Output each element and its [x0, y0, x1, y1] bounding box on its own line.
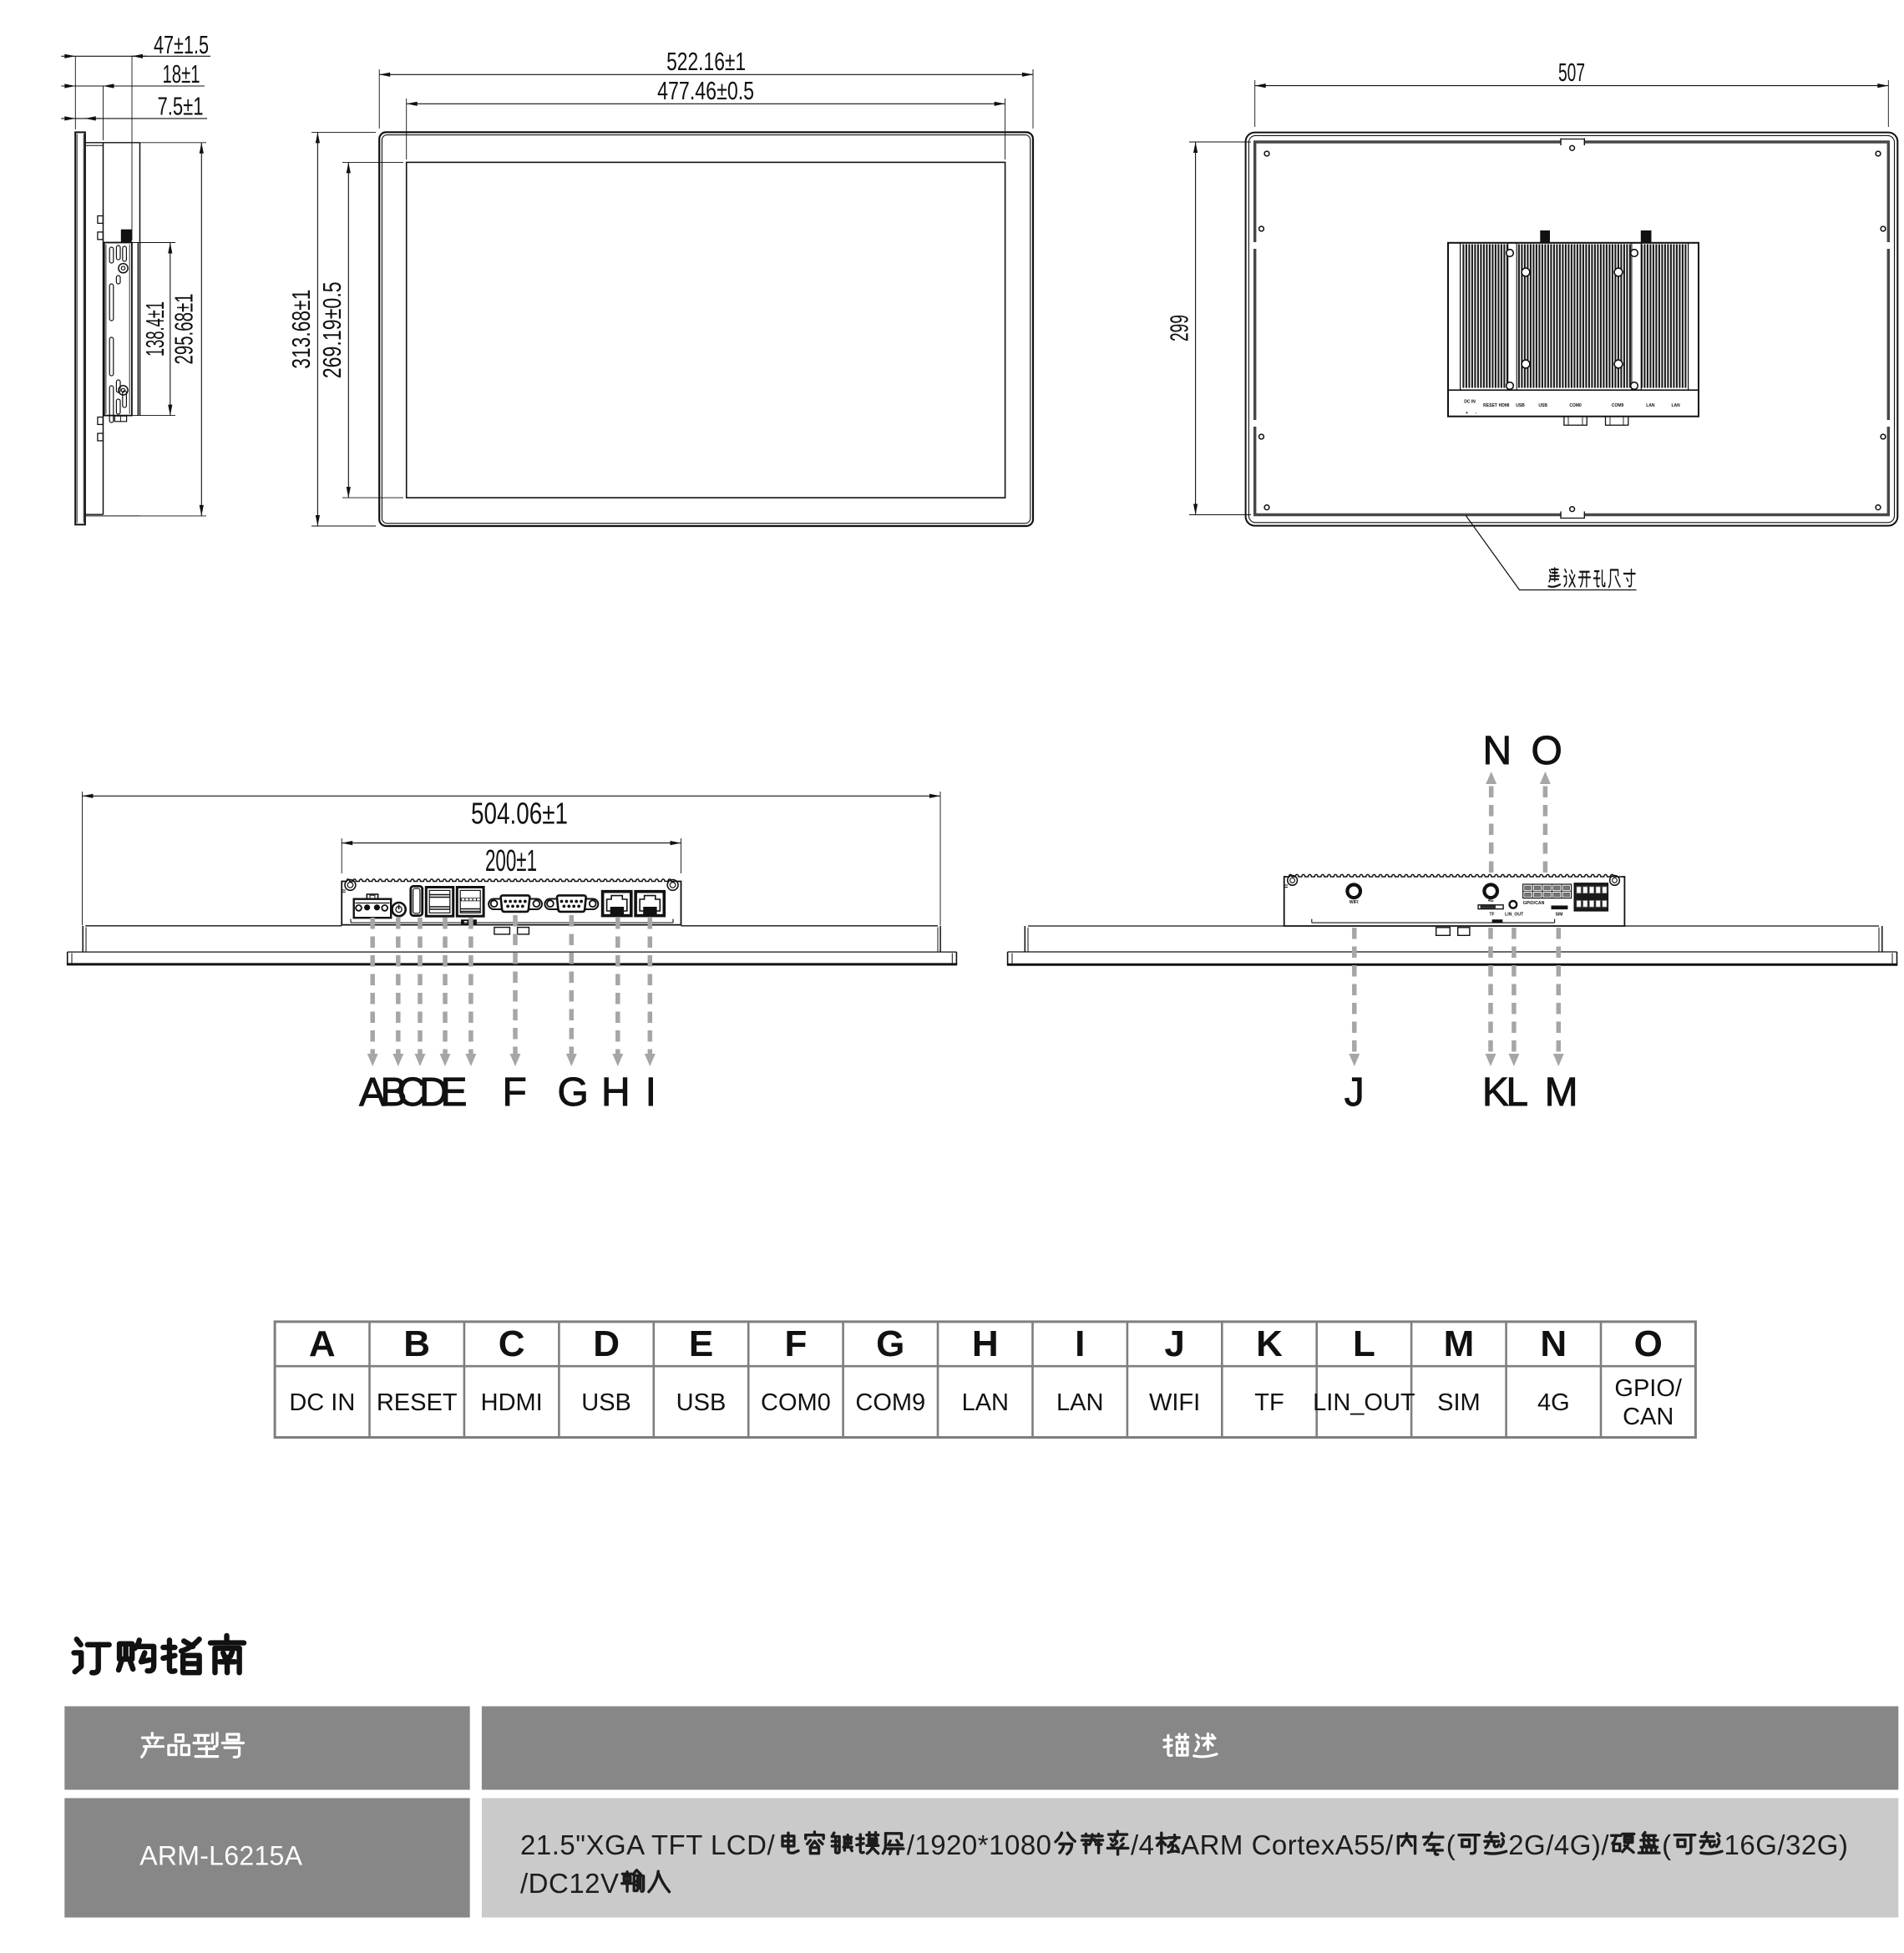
svg-text:I: I	[646, 1070, 656, 1115]
svg-text:LAN: LAN	[1056, 1389, 1103, 1416]
svg-text:4G: 4G	[1488, 898, 1494, 903]
svg-text:295.68±1: 295.68±1	[170, 294, 199, 365]
svg-text:18±1: 18±1	[163, 59, 200, 89]
svg-text:B: B	[403, 1323, 430, 1364]
svg-text:COM0: COM0	[1569, 403, 1582, 408]
svg-text:+: +	[1466, 411, 1468, 416]
svg-text:TF: TF	[1489, 913, 1494, 918]
svg-text:WIFI: WIFI	[1149, 1389, 1200, 1416]
svg-text:H: H	[972, 1323, 999, 1364]
svg-text:/1920*1080: /1920*1080	[907, 1829, 1052, 1860]
svg-text:SIM: SIM	[1556, 913, 1563, 918]
svg-text:O: O	[1634, 1323, 1663, 1364]
svg-text:CAN: CAN	[1623, 1404, 1674, 1430]
svg-text:HDMI: HDMI	[1499, 403, 1510, 408]
svg-text:USB: USB	[581, 1389, 631, 1416]
svg-text:477.46±0.5: 477.46±0.5	[657, 76, 754, 105]
svg-text:A: A	[309, 1323, 336, 1364]
svg-text:J: J	[1164, 1323, 1184, 1364]
svg-text:USB: USB	[1516, 403, 1525, 408]
svg-text:USB: USB	[676, 1389, 727, 1416]
svg-text:K: K	[1482, 1070, 1509, 1115]
svg-text:USB: USB	[1538, 403, 1547, 408]
svg-text:LAN: LAN	[962, 1389, 1009, 1416]
svg-text:200±1: 200±1	[485, 843, 537, 878]
svg-text:299: 299	[1165, 315, 1194, 342]
svg-text:(: (	[1446, 1829, 1456, 1860]
svg-text:L: L	[1353, 1323, 1375, 1364]
svg-text:COM9: COM9	[855, 1389, 925, 1416]
svg-text:K: K	[1256, 1323, 1283, 1364]
svg-text:O: O	[1532, 729, 1562, 773]
svg-text:507: 507	[1558, 58, 1585, 87]
svg-text:(: (	[1662, 1829, 1672, 1860]
svg-text:47±1.5: 47±1.5	[154, 30, 209, 59]
svg-text:C: C	[499, 1323, 525, 1364]
svg-text:N: N	[1540, 1323, 1567, 1364]
svg-text:2G/4G)/: 2G/4G)/	[1508, 1829, 1609, 1860]
svg-text:DC IN: DC IN	[1464, 400, 1476, 405]
svg-text:H: H	[601, 1070, 630, 1115]
svg-text:HDMI: HDMI	[481, 1389, 543, 1416]
svg-text:RESET: RESET	[1483, 403, 1497, 408]
svg-text:504.06±1: 504.06±1	[471, 797, 568, 831]
svg-text:WIFI: WIFI	[1350, 900, 1359, 905]
svg-text:G: G	[876, 1323, 904, 1364]
svg-text:522.16±1: 522.16±1	[666, 47, 746, 76]
svg-text:COM9: COM9	[1612, 403, 1624, 408]
svg-text:-: -	[1476, 411, 1477, 416]
svg-text:I: I	[1075, 1323, 1085, 1364]
svg-text:M: M	[1545, 1070, 1578, 1115]
svg-text:/DC12V: /DC12V	[520, 1868, 620, 1899]
svg-text:LAN: LAN	[1646, 403, 1655, 408]
svg-text:LIN_OUT: LIN_OUT	[1313, 1389, 1415, 1416]
svg-text:313.68±1: 313.68±1	[286, 290, 316, 369]
svg-text:DC IN: DC IN	[289, 1389, 355, 1416]
svg-text:TF: TF	[1254, 1389, 1284, 1416]
svg-text:7.5±1: 7.5±1	[158, 92, 204, 121]
svg-text:SIM: SIM	[1437, 1389, 1481, 1416]
svg-text:21.5"XGA TFT LCD/: 21.5"XGA TFT LCD/	[520, 1829, 775, 1860]
svg-text:F: F	[503, 1070, 527, 1115]
svg-text:N: N	[1482, 729, 1512, 773]
svg-text:269.19±0.5: 269.19±0.5	[317, 281, 347, 378]
svg-text:ARM CortexA55/: ARM CortexA55/	[1181, 1829, 1394, 1860]
svg-text:D: D	[593, 1323, 620, 1364]
svg-text:L: L	[1506, 1070, 1528, 1115]
svg-text:16G/32G): 16G/32G)	[1724, 1829, 1849, 1860]
svg-text:F: F	[784, 1323, 807, 1364]
svg-text:J: J	[1344, 1070, 1365, 1115]
svg-text:M: M	[1444, 1323, 1475, 1364]
svg-text:GPIO/: GPIO/	[1614, 1375, 1683, 1402]
svg-text:LAN: LAN	[1671, 403, 1680, 408]
svg-text:4G: 4G	[1537, 1389, 1570, 1416]
svg-text:ARM-L6215A: ARM-L6215A	[139, 1841, 302, 1871]
svg-text:COM0: COM0	[761, 1389, 831, 1416]
svg-text:/4: /4	[1131, 1829, 1155, 1860]
svg-text:GPIO/CAN: GPIO/CAN	[1523, 901, 1545, 906]
svg-text:RESET: RESET	[377, 1389, 458, 1416]
svg-text:E: E	[440, 1070, 467, 1115]
svg-text:E: E	[689, 1323, 713, 1364]
svg-text:G: G	[558, 1070, 589, 1115]
svg-text:LIN_OUT: LIN_OUT	[1505, 913, 1524, 918]
svg-text:138.4±1: 138.4±1	[140, 301, 170, 357]
